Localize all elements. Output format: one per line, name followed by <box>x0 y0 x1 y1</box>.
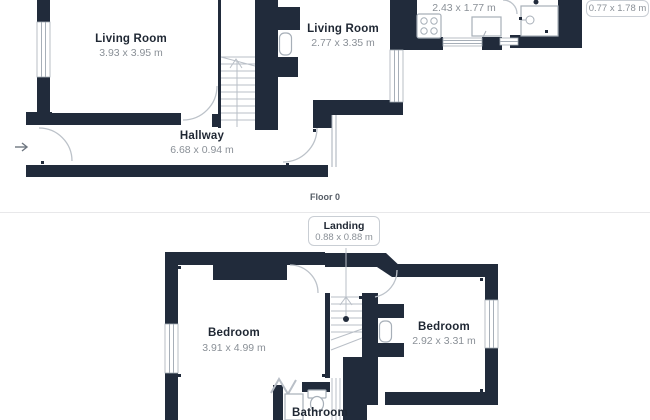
room-label-bathroom: Bathroom <box>292 407 348 419</box>
staircase-floor0 <box>221 57 255 127</box>
stair-treads <box>221 57 255 127</box>
room-dims-kitchen: 2.43 x 1.77 m <box>432 2 496 14</box>
fireplace-alcove-icon <box>280 33 292 55</box>
stair-newel-dot <box>343 316 349 322</box>
sink-icon <box>472 17 501 37</box>
chimney-alcove-icon <box>380 321 392 342</box>
bedroom1-door-swing <box>290 265 318 293</box>
livingroom1-door-swing <box>183 86 217 120</box>
floor-divider <box>0 212 650 213</box>
room-label-hallway: Hallway <box>180 130 224 142</box>
badge-dims: 0.88 x 0.88 m <box>315 232 373 243</box>
badge-name: Landing <box>324 220 365 232</box>
floorplan-drawing <box>0 0 650 420</box>
floor0-plan <box>15 0 582 177</box>
stove-icon <box>417 14 441 38</box>
room-dims-living-room-2: 2.77 x 3.35 m <box>311 37 375 49</box>
floorplan-image: Living Room 3.93 x 3.95 m Living Room 2.… <box>0 0 650 420</box>
entrance-arrow-icon <box>15 143 27 151</box>
room-dims-bedroom-1: 3.91 x 4.99 m <box>202 342 266 354</box>
room-dims-hallway: 6.68 x 0.94 m <box>170 144 234 156</box>
room-label-living-room-1: Living Room <box>95 33 167 45</box>
shower-icon <box>521 6 558 36</box>
livingroom2-door-swing <box>283 128 317 162</box>
landing-badge: Landing 0.88 x 0.88 m <box>308 216 380 246</box>
shower-room-badge: 0.77 x 1.78 m <box>586 0 649 17</box>
room-label-bedroom-1: Bedroom <box>208 327 260 339</box>
room-dims-living-room-1: 3.93 x 3.95 m <box>99 47 163 59</box>
floor-caption: Floor 0 <box>310 192 340 202</box>
door-hinge-dot <box>534 0 539 5</box>
room-label-living-room-2: Living Room <box>307 23 379 35</box>
room-dims-bedroom-2: 2.92 x 3.31 m <box>412 335 476 347</box>
badge-dims: 0.77 x 1.78 m <box>589 3 647 14</box>
floor1-door-swings <box>290 265 397 297</box>
room-label-bedroom-2: Bedroom <box>418 321 470 333</box>
showerroom-door-swing <box>503 0 517 14</box>
entry-door-swing <box>39 128 72 161</box>
